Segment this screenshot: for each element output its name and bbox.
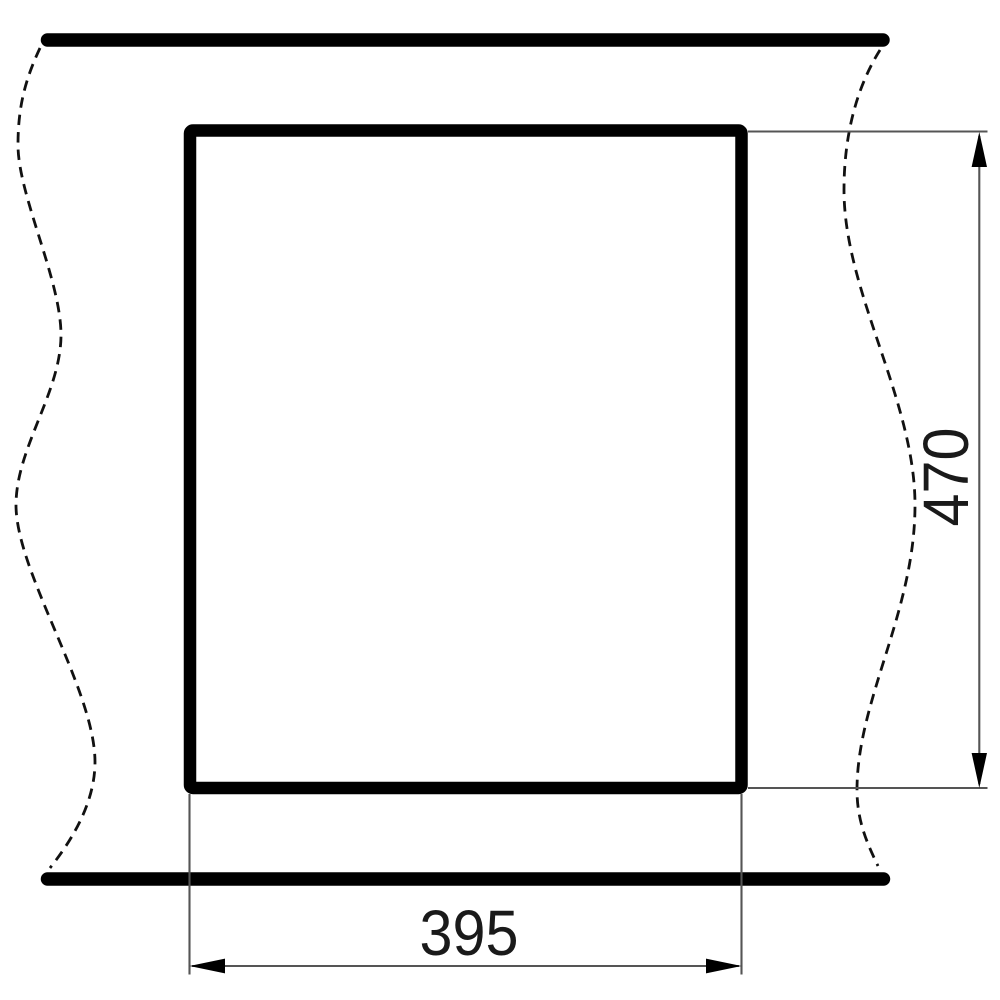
svg-text:395: 395	[420, 897, 519, 969]
svg-text:470: 470	[910, 428, 982, 527]
